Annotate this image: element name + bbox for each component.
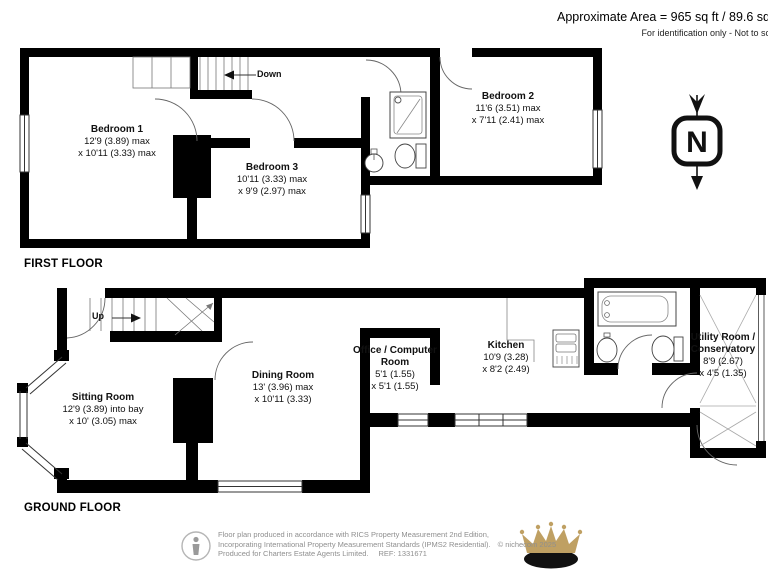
bathtub-icon bbox=[598, 292, 676, 326]
room-label-dining-room: Dining Room 13' (3.96) max x 10'11 (3.33… bbox=[252, 370, 314, 405]
floorplan-page: N Approximate Area = 965 sq ft / 89.6 sq… bbox=[0, 0, 768, 576]
footer-line-1: Floor plan produced in accordance with R… bbox=[218, 530, 556, 540]
copyright-text: © nichecom 2025 bbox=[498, 540, 556, 550]
reference-number: REF: 1331671 bbox=[379, 549, 427, 559]
toilet-icon bbox=[395, 144, 426, 168]
sink-icon bbox=[597, 333, 617, 362]
room-label-utility-conservatory: Utility Room / Conservatory 8'9 (2.67) x… bbox=[679, 332, 767, 379]
footer-line-3: Produced for Charters Estate Agents Limi… bbox=[218, 549, 556, 559]
shower-icon bbox=[390, 92, 426, 138]
bay-window bbox=[20, 357, 66, 480]
first-floor-label: FIRST FLOOR bbox=[24, 258, 103, 270]
room-label-sitting-room: Sitting Room 12'9 (3.89) into bay x 10' … bbox=[62, 392, 143, 427]
first-floor-bathroom-fixtures bbox=[365, 92, 426, 172]
scale-note-text: For identification only - Not to sc bbox=[641, 28, 768, 38]
room-label-bedroom-3: Bedroom 3 10'11 (3.33) max x 9'9 (2.97) … bbox=[237, 162, 307, 197]
ground-floor-stairs bbox=[90, 298, 214, 335]
room-label-office: Office / Computer Room 5'1 (1.55) x 5'1 … bbox=[353, 345, 437, 392]
room-label-bedroom-1: Bedroom 1 12'9 (3.89) max x 10'11 (3.33)… bbox=[78, 124, 156, 159]
room-label-bedroom-2: Bedroom 2 11'6 (3.51) max x 7'11 (2.41) … bbox=[472, 91, 544, 126]
footer-line-2: Incorporating International Property Mea… bbox=[218, 540, 556, 550]
footer-disclaimer: Floor plan produced in accordance with R… bbox=[218, 530, 556, 559]
ground-floor-bathroom-fixtures bbox=[597, 292, 683, 362]
floorplan-drawing: N bbox=[0, 0, 768, 576]
stairs-down-label: Down bbox=[257, 69, 282, 79]
svg-text:N: N bbox=[686, 126, 708, 159]
ground-floor-label: GROUND FLOOR bbox=[24, 502, 121, 514]
up-arrow-icon bbox=[112, 314, 141, 323]
stairs-up-label: Up bbox=[92, 311, 104, 321]
room-label-kitchen: Kitchen 10'9 (3.28) x 8'2 (2.49) bbox=[482, 340, 529, 375]
kitchen-sink-icon bbox=[553, 330, 579, 367]
person-icon bbox=[182, 532, 210, 560]
approximate-area-text: Approximate Area = 965 sq ft / 89.6 sq bbox=[557, 10, 768, 24]
north-arrow-icon: N bbox=[674, 94, 720, 190]
